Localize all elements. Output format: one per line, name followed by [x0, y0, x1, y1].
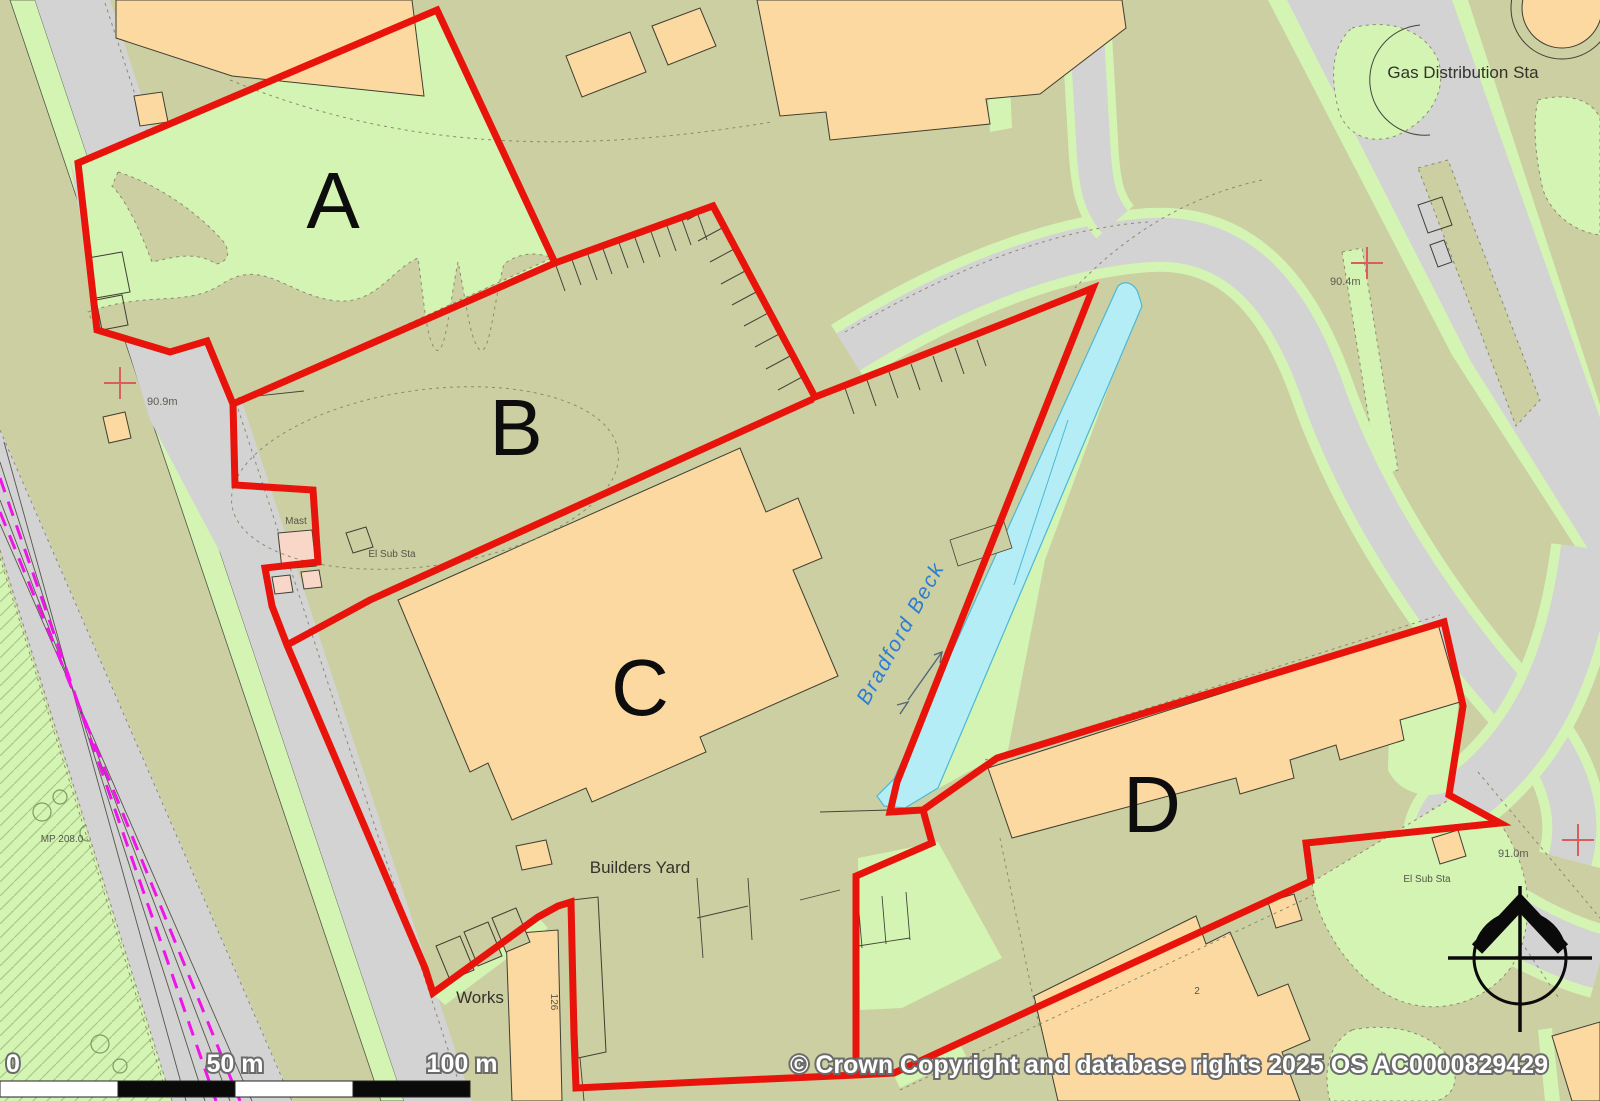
map-viewport: A B C D Gas Distribution Sta Builders Ya…	[0, 0, 1600, 1101]
parcel-b-label: B	[489, 383, 542, 472]
parcel-d-label: D	[1123, 760, 1181, 849]
gas-distribution-sta-label: Gas Distribution Sta	[1387, 63, 1539, 82]
map-canvas: A B C D Gas Distribution Sta Builders Ya…	[0, 0, 1600, 1101]
el-sub-sta-label-north: El Sub Sta	[368, 549, 416, 560]
milepost-label: MP 208.0	[41, 834, 84, 845]
scale-hundred-label: 100 m	[427, 1050, 498, 1078]
building	[516, 840, 552, 870]
mast-building	[272, 575, 293, 594]
parcel-a-label: A	[306, 156, 360, 245]
el-sub-sta-label-southeast: El Sub Sta	[1403, 874, 1451, 885]
parcel-c-label: C	[611, 643, 669, 732]
building-2-label: 2	[1194, 986, 1200, 997]
builders-yard-label: Builders Yard	[590, 858, 690, 877]
mast-label: Mast	[285, 516, 307, 527]
scale-fifty-label: 50 m	[207, 1050, 264, 1078]
building	[134, 92, 168, 126]
spot-height-northeast: 90.4m	[1330, 276, 1361, 288]
mast-building	[301, 570, 322, 589]
building-126	[506, 930, 562, 1101]
spot-height-southeast: 91.0m	[1498, 848, 1529, 860]
building-126-label: 126	[548, 994, 559, 1011]
spot-height-west: 90.9m	[147, 396, 178, 408]
works-label: Works	[456, 988, 504, 1007]
copyright-notice: © Crown Copyright and database rights 20…	[790, 1051, 1548, 1079]
scale-zero-label: 0	[6, 1050, 20, 1078]
